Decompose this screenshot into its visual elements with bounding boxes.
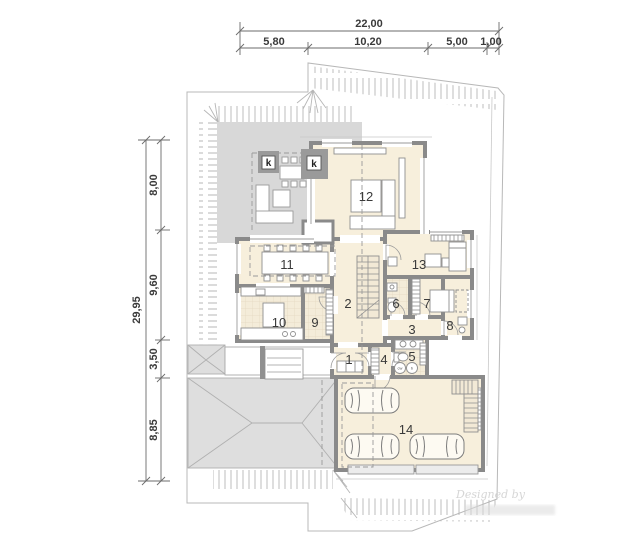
car bbox=[345, 434, 399, 459]
room-label-3: 3 bbox=[408, 322, 415, 337]
table bbox=[458, 317, 467, 325]
dim-seg-960: 9,60 bbox=[148, 274, 160, 295]
floor-plan-page: 22,00 5,80 10,20 5,00 1,00 29,95 8,00 9,… bbox=[0, 0, 638, 556]
car bbox=[345, 388, 399, 413]
dim-seg-1020: 10,20 bbox=[354, 36, 382, 48]
dining-table bbox=[262, 252, 328, 274]
room-label-5: 5 bbox=[408, 349, 415, 364]
room-label-13: 13 bbox=[412, 257, 426, 272]
bed bbox=[449, 242, 466, 271]
room-label-14: 14 bbox=[399, 422, 413, 437]
wardrobe bbox=[371, 348, 379, 374]
room-label-8: 8 bbox=[446, 318, 453, 333]
cabinet bbox=[420, 343, 426, 365]
kitchen-counter bbox=[241, 287, 301, 296]
shelving bbox=[304, 287, 324, 293]
bed bbox=[430, 290, 454, 312]
watermark-logo-blur bbox=[465, 505, 555, 515]
bath-counter bbox=[395, 340, 423, 349]
room-label-1: 1 bbox=[345, 352, 352, 367]
room-label-9: 9 bbox=[311, 315, 318, 330]
dim-seg-350: 3,50 bbox=[148, 348, 160, 369]
dim-total-height: 29,95 bbox=[131, 296, 143, 324]
garage-door-left bbox=[348, 465, 414, 474]
dim-seg-580: 5,80 bbox=[263, 36, 284, 48]
dim-total-width: 22,00 bbox=[355, 18, 383, 30]
stairs-main bbox=[357, 256, 379, 318]
hatch-band-left bbox=[199, 122, 217, 345]
room-label-11: 11 bbox=[280, 257, 294, 272]
room-label-12: 12 bbox=[359, 189, 373, 204]
room-label-2: 2 bbox=[344, 296, 351, 311]
garage-door-right bbox=[416, 465, 478, 474]
shelf bbox=[431, 235, 464, 241]
shelving bbox=[326, 289, 333, 335]
hatch-band-top-left bbox=[218, 106, 352, 122]
car bbox=[410, 434, 464, 459]
fireplace-label-k1: k bbox=[266, 158, 272, 169]
room-label-10: 10 bbox=[272, 315, 286, 330]
tv-sideboard bbox=[334, 148, 386, 154]
fireplace-label-k2: k bbox=[311, 159, 317, 170]
room-label-6: 6 bbox=[392, 296, 399, 311]
entrance-steps bbox=[265, 349, 303, 379]
desk bbox=[425, 254, 441, 267]
entrance-walkway bbox=[225, 346, 336, 379]
dim-seg-885: 8,85 bbox=[148, 419, 160, 440]
hatch-band-bottom-left bbox=[213, 470, 333, 492]
washer-label: cw bbox=[398, 366, 403, 371]
chair bbox=[442, 258, 449, 267]
watermark-script: Designed by bbox=[455, 488, 526, 501]
dim-seg-500: 5,00 bbox=[446, 36, 467, 48]
dim-seg-800: 8,00 bbox=[148, 174, 160, 195]
dim-seg-100: 1,00 bbox=[480, 36, 501, 48]
wardrobe-shelves bbox=[412, 279, 420, 314]
sofa bbox=[350, 216, 395, 229]
shelf bbox=[399, 158, 405, 218]
floor-plan-canvas: 22,00 5,80 10,20 5,00 1,00 29,95 8,00 9,… bbox=[0, 0, 638, 556]
room-label-7: 7 bbox=[423, 296, 430, 311]
room-label-4: 4 bbox=[380, 352, 387, 367]
